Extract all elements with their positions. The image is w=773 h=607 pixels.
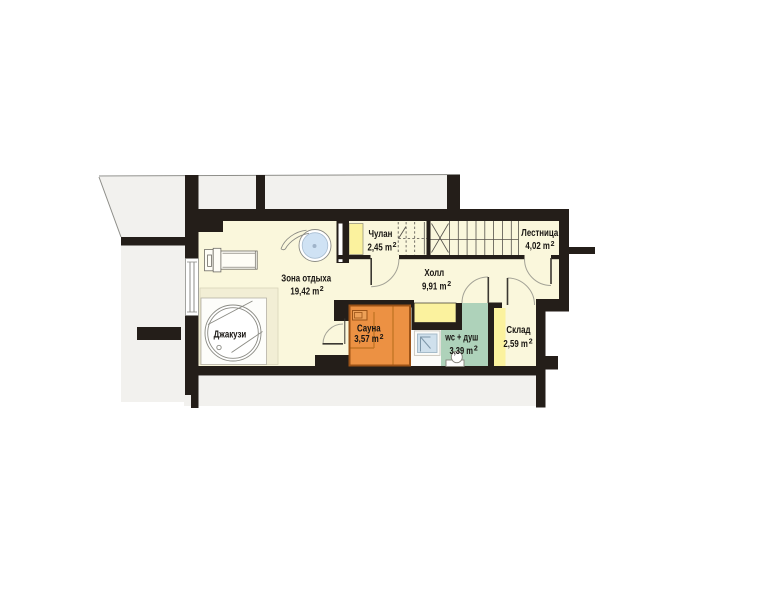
svg-text:2: 2 [529,339,533,346]
svg-text:wc + душ: wc + душ [444,331,478,343]
svg-text:2: 2 [380,334,384,341]
svg-text:3,39 m: 3,39 m [450,345,473,356]
svg-text:Чулан: Чулан [369,228,393,239]
svg-text:4,02 m: 4,02 m [525,240,549,251]
svg-text:2: 2 [551,241,555,248]
svg-text:Сауна: Сауна [357,322,381,333]
svg-text:Джакузи: Джакузи [214,328,247,339]
svg-text:2: 2 [393,242,397,249]
svg-text:19,42 m: 19,42 m [290,285,319,296]
svg-text:3,57 m: 3,57 m [354,333,378,344]
svg-text:2,59 m: 2,59 m [503,338,527,349]
svg-text:9,91 m: 9,91 m [422,281,446,292]
svg-text:Холл: Холл [424,267,444,278]
svg-text:2,45 m: 2,45 m [368,242,392,253]
svg-text:2: 2 [474,345,478,352]
svg-text:2: 2 [320,286,324,293]
svg-text:Склад: Склад [506,324,530,335]
svg-text:Лестница: Лестница [521,227,559,238]
svg-text:Зона отдыха: Зона отдыха [281,272,332,283]
svg-text:2: 2 [447,281,451,288]
